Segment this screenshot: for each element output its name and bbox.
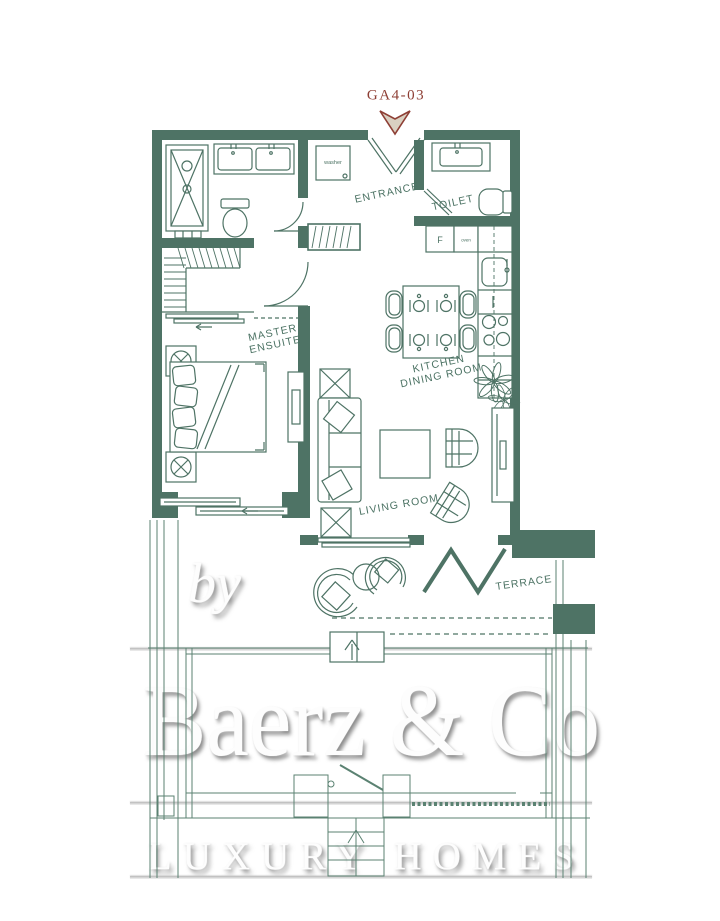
coffee-table-icon xyxy=(380,430,430,478)
double-sink-icon xyxy=(214,144,294,174)
tv-unit-icon xyxy=(492,408,514,502)
armchair-icon xyxy=(446,429,478,467)
closet-sliding-door-icon xyxy=(166,314,244,330)
toilet-sink-icon xyxy=(432,143,490,171)
side-table-icon xyxy=(320,369,350,398)
dining-table-icon xyxy=(386,286,476,358)
oven-box xyxy=(454,226,478,252)
shower-icon xyxy=(166,145,208,238)
side-table-icon-2 xyxy=(321,508,351,537)
toilet-fixture-icon xyxy=(221,199,249,237)
armchair-icon-2 xyxy=(431,482,476,529)
floor-plan-drawing xyxy=(0,0,720,921)
stairs-icon xyxy=(328,818,384,876)
terrace-steps-icon xyxy=(330,632,384,662)
fridge-box xyxy=(426,226,454,252)
bed-icon xyxy=(170,362,266,452)
bedside-lamp-icon-2 xyxy=(166,452,196,482)
terrace-chair-icon xyxy=(314,569,357,617)
washer-icon xyxy=(316,146,350,180)
toilet-wc-icon xyxy=(479,189,512,215)
dresser-icon xyxy=(288,372,304,442)
sofa-icon xyxy=(318,398,361,502)
kitchen-sink-icon xyxy=(482,258,507,286)
floor-plan-page: by Baerz & Co LUXURY HOMES xyxy=(0,0,720,921)
hall-closet-icon xyxy=(308,224,360,250)
wardrobe-icon xyxy=(162,248,254,312)
terrace-sliding-door-icon xyxy=(318,538,410,547)
bifold-door-icon xyxy=(424,549,505,592)
toilet-door-icon xyxy=(424,189,452,215)
unit-pointer-arrow-icon xyxy=(380,111,410,134)
bedroom-door-icon xyxy=(264,262,308,306)
bedroom-window-icon xyxy=(160,498,288,515)
terrace-table-icon xyxy=(353,564,379,590)
